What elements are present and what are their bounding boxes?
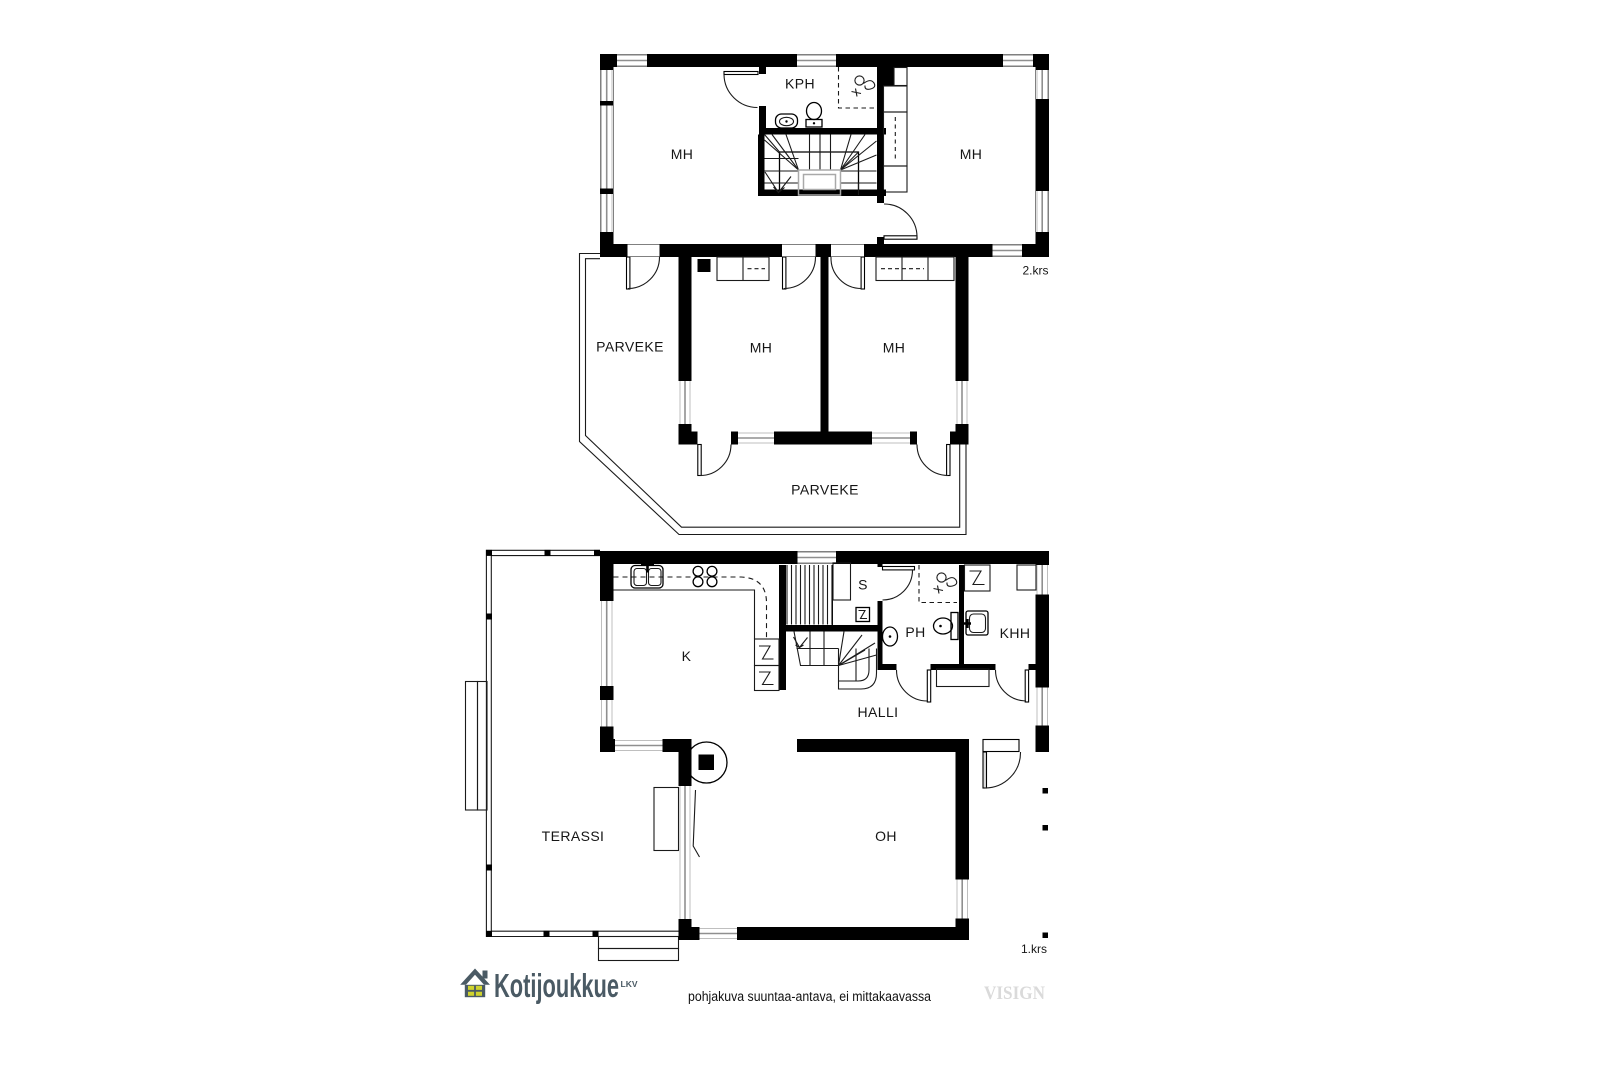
svg-text:K: K bbox=[682, 648, 692, 664]
svg-text:MH: MH bbox=[750, 340, 773, 356]
svg-text:MH: MH bbox=[960, 146, 983, 162]
svg-text:OH: OH bbox=[875, 828, 897, 844]
svg-text:HALLI: HALLI bbox=[858, 704, 899, 720]
svg-text:PARVEKE: PARVEKE bbox=[596, 339, 664, 355]
svg-text:PARVEKE: PARVEKE bbox=[791, 482, 859, 498]
svg-text:KHH: KHH bbox=[1000, 625, 1031, 641]
svg-text:2.krs: 2.krs bbox=[1022, 264, 1048, 278]
svg-text:Kotijoukkue: Kotijoukkue bbox=[494, 968, 619, 1005]
svg-text:pohjakuva suuntaa-antava, ei m: pohjakuva suuntaa-antava, ei mittakaavas… bbox=[688, 989, 931, 1004]
svg-text:1.krs: 1.krs bbox=[1021, 942, 1047, 956]
svg-text:VISIGN: VISIGN bbox=[984, 983, 1045, 1004]
svg-text:KPH: KPH bbox=[785, 76, 815, 92]
svg-text:MH: MH bbox=[883, 340, 906, 356]
svg-text:MH: MH bbox=[671, 146, 694, 162]
svg-text:TERASSI: TERASSI bbox=[542, 828, 605, 844]
svg-text:PH: PH bbox=[905, 624, 925, 640]
svg-text:LKV: LKV bbox=[621, 979, 638, 989]
svg-text:S: S bbox=[858, 577, 868, 593]
